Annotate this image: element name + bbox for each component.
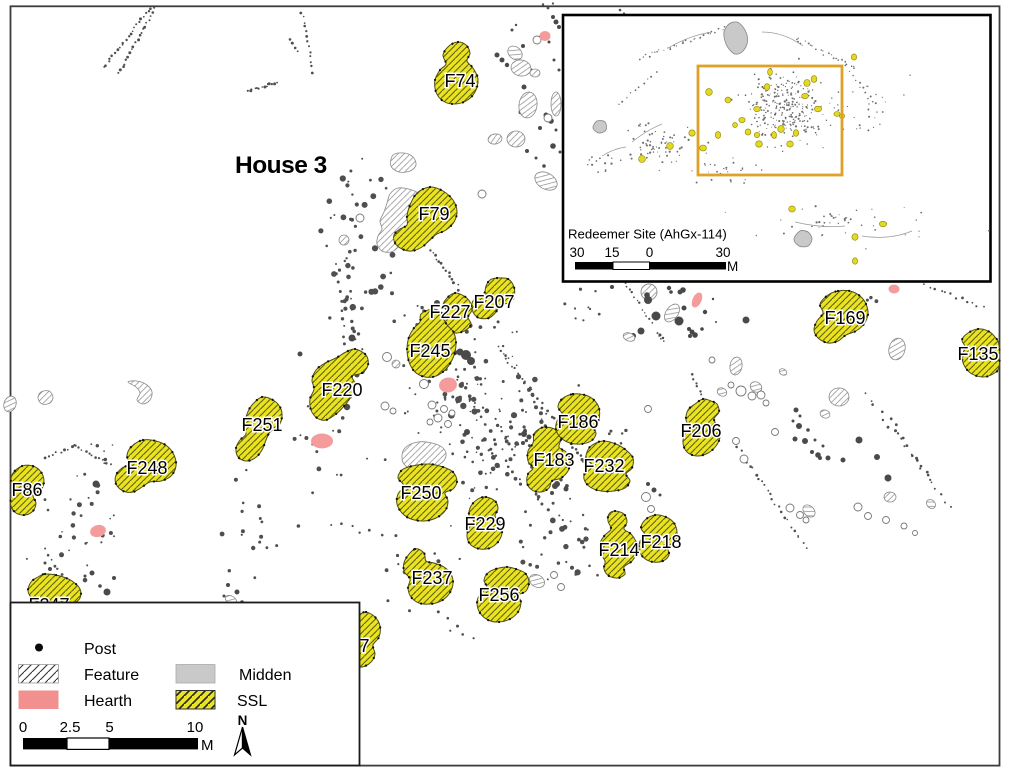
svg-text:F183: F183 (533, 450, 574, 470)
svg-text:Feature: Feature (84, 667, 139, 684)
svg-text:F86: F86 (11, 480, 42, 500)
svg-text:0: 0 (646, 245, 654, 260)
svg-text:5: 5 (105, 719, 113, 736)
svg-text:F218: F218 (640, 532, 681, 552)
svg-text:F135: F135 (957, 344, 998, 364)
svg-text:F214: F214 (598, 540, 639, 560)
svg-text:Redeemer Site (AhGx-114): Redeemer Site (AhGx-114) (568, 227, 727, 242)
svg-text:F248: F248 (126, 458, 167, 478)
svg-text:30: 30 (569, 245, 584, 260)
svg-text:30: 30 (715, 245, 730, 260)
svg-text:Post: Post (84, 641, 117, 658)
svg-text:M: M (727, 259, 738, 274)
svg-text:Midden: Midden (239, 667, 291, 684)
svg-text:F169: F169 (824, 308, 865, 328)
svg-text:F206: F206 (680, 421, 721, 441)
svg-text:M: M (201, 737, 214, 754)
svg-text:F74: F74 (444, 71, 475, 91)
svg-text:F250: F250 (400, 483, 441, 503)
svg-text:15: 15 (604, 245, 619, 260)
svg-text:F186: F186 (557, 412, 598, 432)
svg-text:Hearth: Hearth (84, 693, 132, 710)
svg-text:F237: F237 (411, 568, 452, 588)
svg-text:N: N (238, 713, 248, 728)
svg-text:F220: F220 (321, 380, 362, 400)
svg-text:10: 10 (187, 719, 204, 736)
svg-text:F232: F232 (583, 456, 624, 476)
svg-text:F207: F207 (473, 292, 514, 312)
svg-text:2.5: 2.5 (60, 719, 81, 736)
svg-text:SSL: SSL (237, 693, 267, 710)
svg-text:F256: F256 (478, 585, 519, 605)
svg-text:House 3: House 3 (235, 152, 327, 179)
svg-text:0: 0 (19, 719, 27, 736)
svg-text:F79: F79 (418, 204, 449, 224)
svg-text:F229: F229 (464, 514, 505, 534)
svg-text:F251: F251 (241, 415, 282, 435)
svg-text:F245: F245 (409, 341, 450, 361)
svg-text:F227: F227 (429, 302, 470, 322)
